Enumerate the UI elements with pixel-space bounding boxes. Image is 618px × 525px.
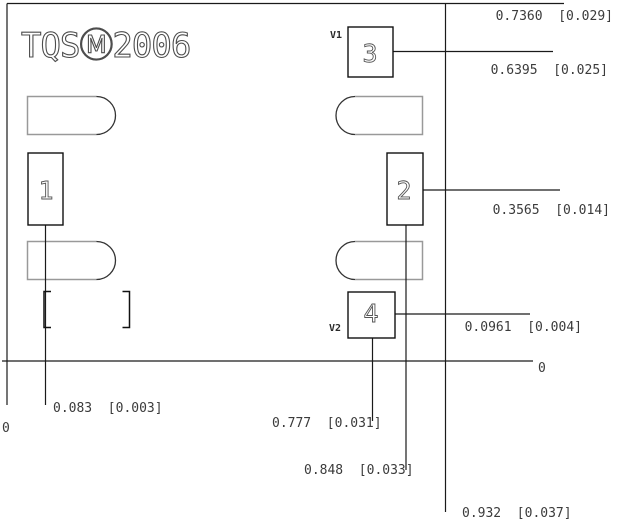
pad-arc-group: [97, 97, 356, 280]
dim-y-00961: 0.0961 [0.004]: [465, 321, 582, 334]
dim-y-zero: 0: [538, 362, 546, 375]
dim-x-0777: 0.777 [0.031]: [272, 417, 382, 430]
pin-boxes: [28, 27, 423, 338]
pin-2-number: 2: [396, 176, 411, 205]
dimension-lines: [2, 4, 564, 513]
pad-top-right: [355, 97, 423, 135]
pad-top-left: [28, 97, 97, 135]
dim-y-06395: 0.6395 [0.025]: [491, 64, 608, 77]
cad-linework: TQSⓂ2006 1 2 3 4: [0, 0, 618, 525]
pin-1-number: 1: [38, 176, 53, 205]
dim-x-0932: 0.932 [0.037]: [462, 507, 572, 520]
silkscreen-brackets: [44, 292, 130, 328]
pad-top-left-arc-icon: [97, 97, 116, 135]
dim-x-0083: 0.083 [0.003]: [53, 402, 163, 415]
pad-bottom-right: [355, 242, 423, 280]
footprint-drawing-canvas: TQSⓂ2006 1 2 3 4 V1 V2 0.7360 [0.029] 0.…: [0, 0, 618, 525]
dim-y-0736: 0.7360 [0.029]: [496, 10, 613, 23]
dim-x-0848: 0.848 [0.033]: [304, 464, 414, 477]
pin-3-number: 3: [362, 39, 377, 68]
pad-bottom-left: [28, 242, 97, 280]
pad-bottom-right-arc-icon: [336, 242, 355, 280]
pad-bottom-left-arc-icon: [97, 242, 116, 280]
pin-4-number: 4: [363, 299, 378, 328]
pin-numbers: 1 2 3 4: [38, 39, 411, 328]
pad-group: [28, 97, 423, 280]
dim-x-zero: 0: [2, 422, 10, 435]
vendor-logo: TQSⓂ2006: [21, 26, 190, 66]
pad-top-right-arc-icon: [336, 97, 355, 135]
via-v2-label: V2: [329, 324, 341, 334]
via-v1-label: V1: [330, 31, 342, 41]
right-bracket-icon: [123, 292, 130, 328]
dim-y-03565: 0.3565 [0.014]: [493, 204, 610, 217]
